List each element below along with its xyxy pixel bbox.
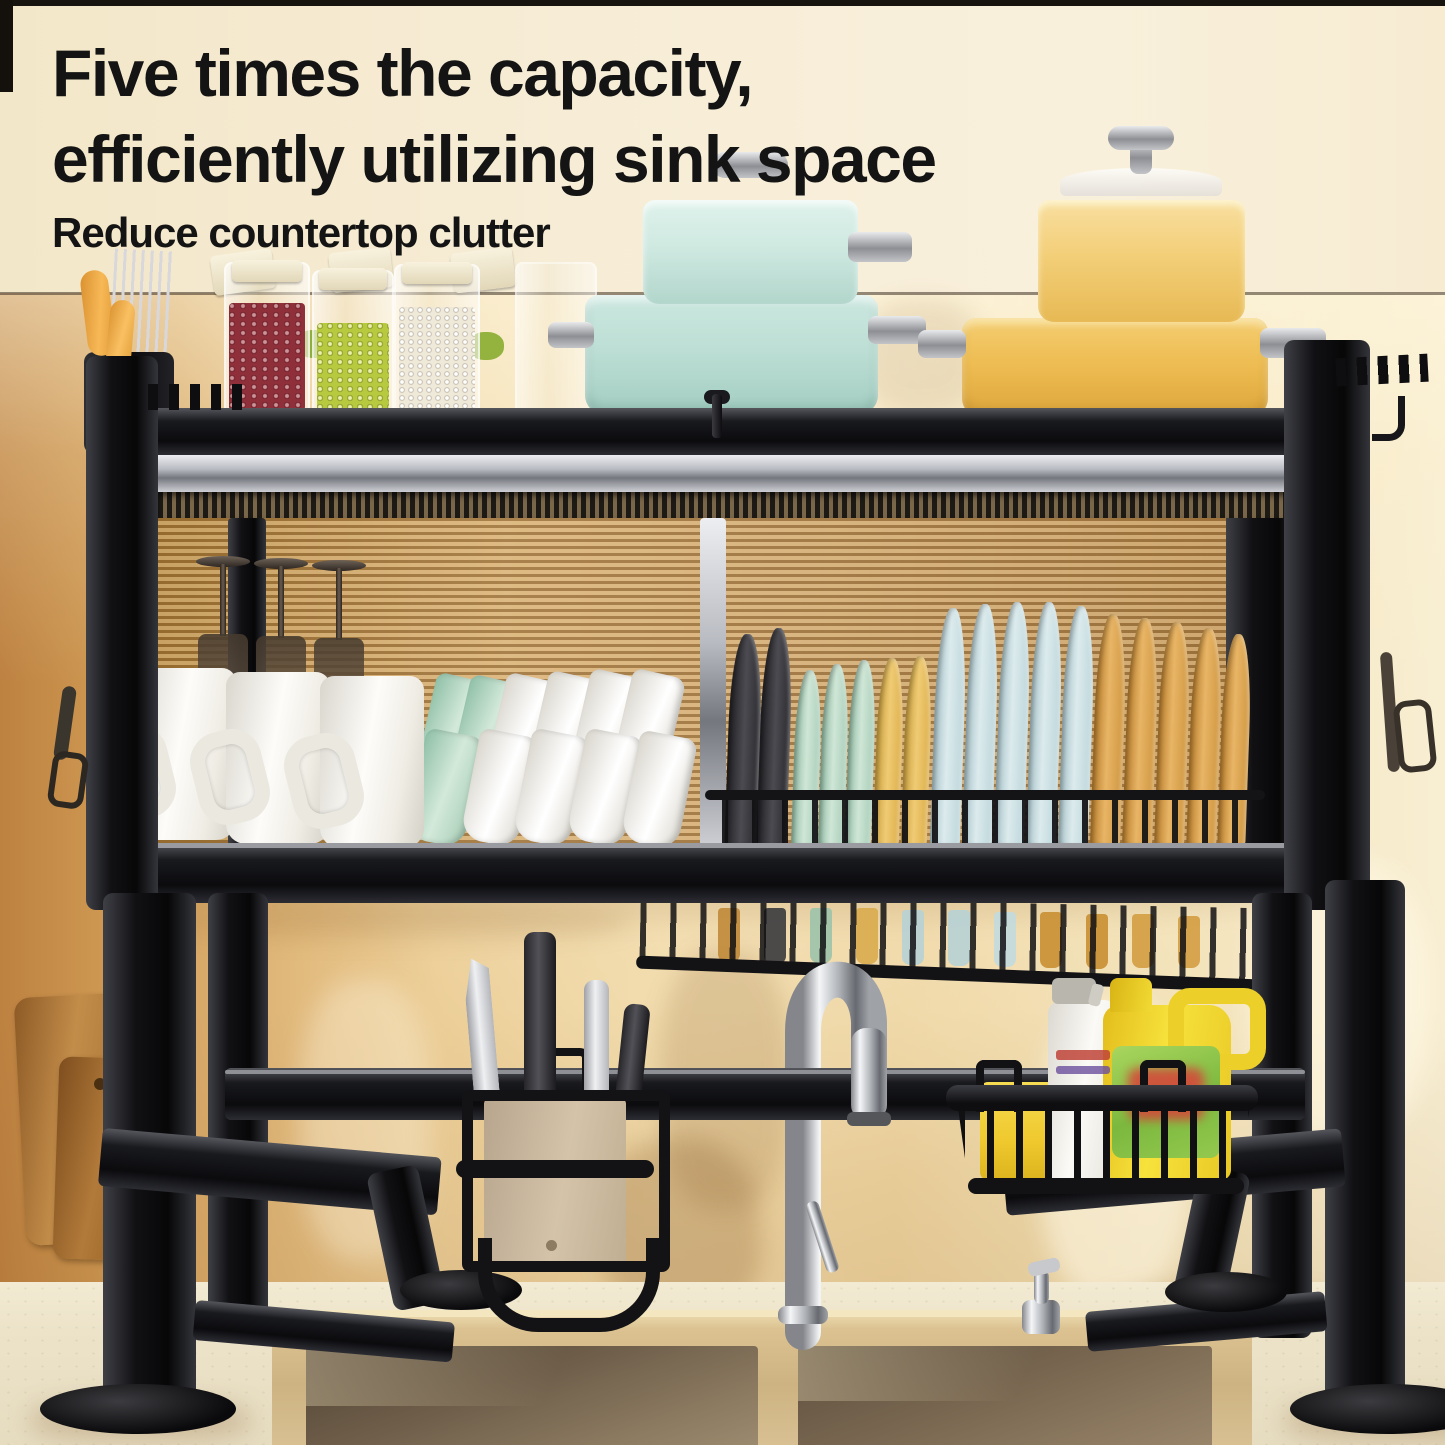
spray-head-nozzle <box>847 1112 891 1126</box>
spray-head-body <box>851 1028 887 1120</box>
spray-label-stripe <box>1056 1050 1110 1060</box>
knife <box>584 980 609 1096</box>
basket-rim <box>946 1085 1258 1111</box>
knife-holder-u-bottom <box>478 1238 660 1332</box>
knife-handle <box>524 932 556 1096</box>
headline-subtitle: Reduce countertop clutter <box>52 212 550 254</box>
detergent-jug-cap <box>1110 978 1152 1012</box>
knife-holder-strap <box>456 1160 654 1178</box>
spray-label-stripe <box>1056 1066 1110 1074</box>
headline-line-1: Five times the capacity, <box>52 40 752 106</box>
headline-line-2: efficiently utilizing sink space <box>52 126 936 192</box>
product-photo: Five times the capacity, efficiently uti… <box>0 0 1445 1445</box>
basket-bottom-rail <box>968 1178 1244 1194</box>
